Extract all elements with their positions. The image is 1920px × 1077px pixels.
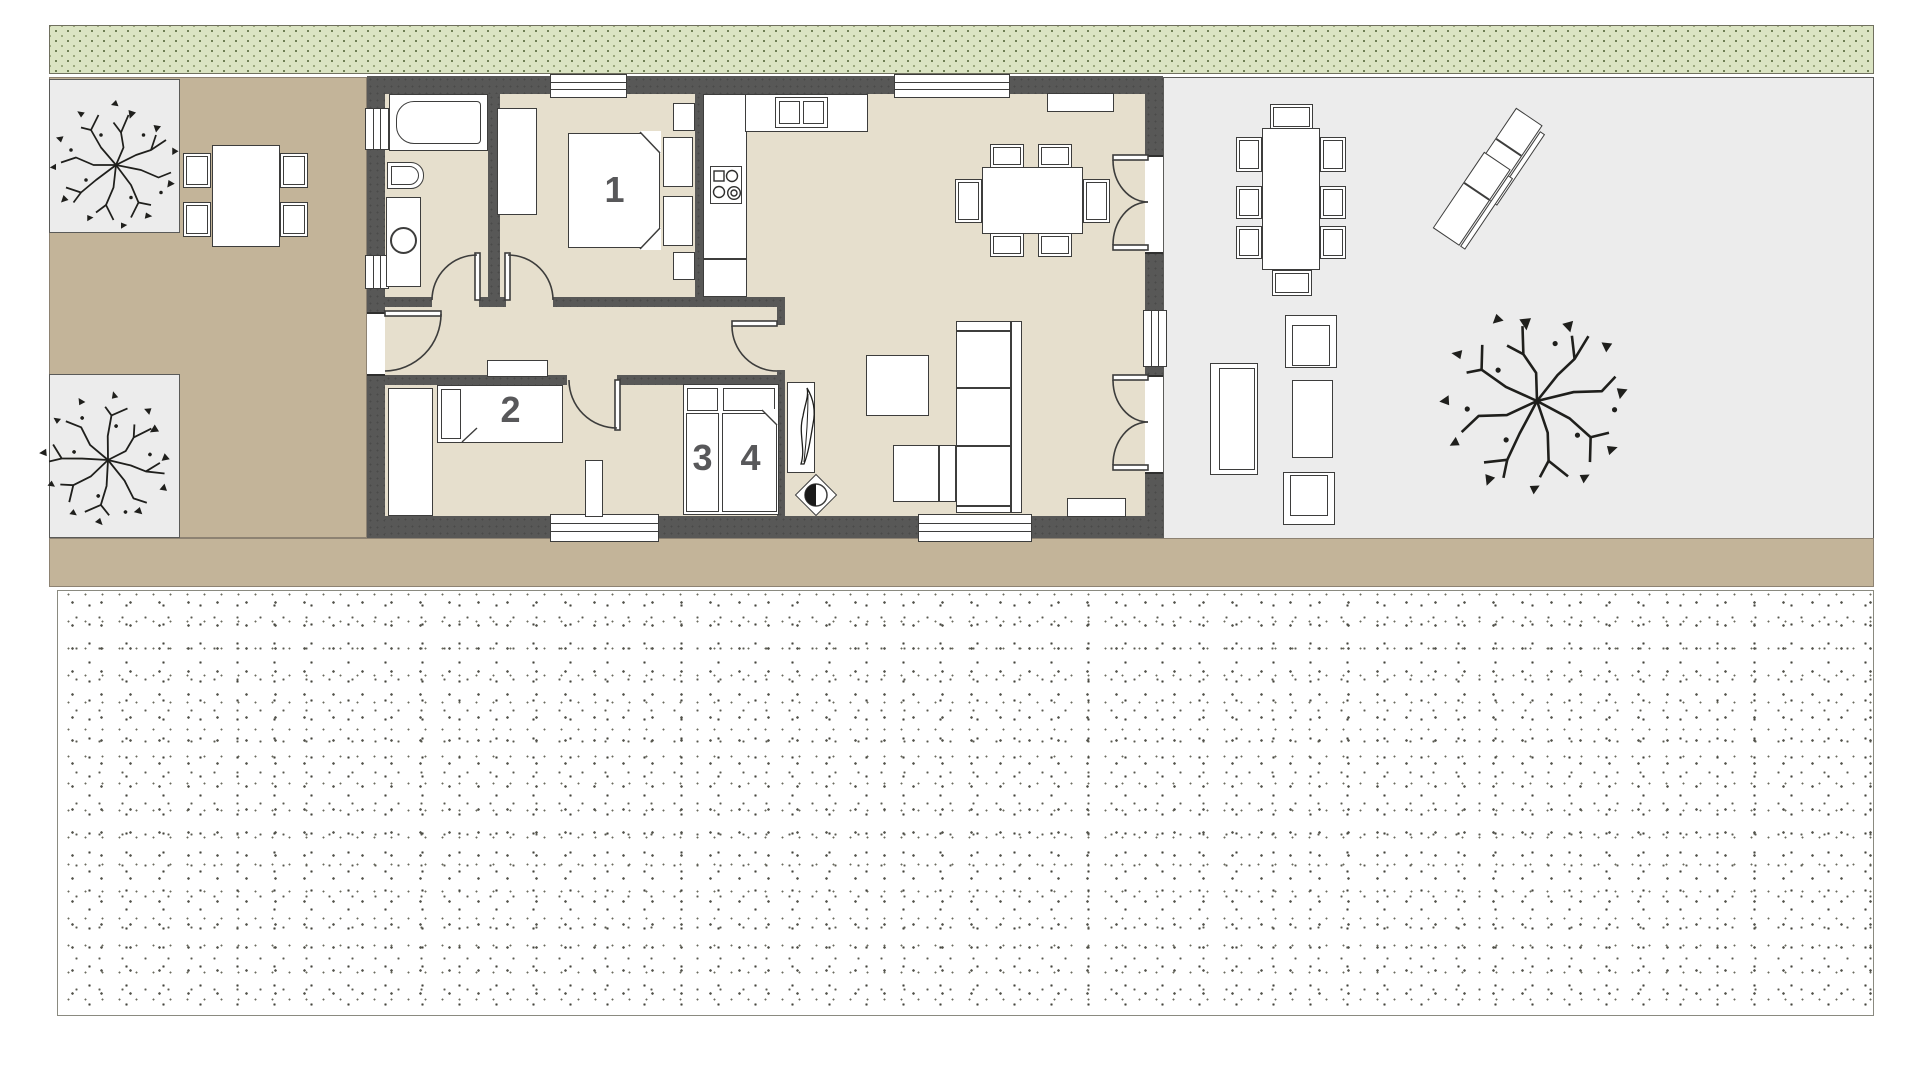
window-east-living	[1143, 310, 1167, 367]
window-south-kidsroom	[550, 514, 659, 542]
terrace-chair-right-2	[1320, 186, 1346, 219]
wall-hall-c	[553, 297, 785, 307]
bedroom1-door-opening	[506, 297, 553, 307]
kidsroom-shelf	[585, 460, 603, 517]
wall-hall-end-bottom	[777, 370, 785, 385]
bed-1-pillow-top	[663, 137, 693, 187]
wall-hall-end-top	[777, 307, 785, 325]
plant-stand	[787, 382, 815, 473]
terrace-chair-bottom	[1272, 270, 1312, 296]
kitchen-stove	[710, 166, 742, 204]
wall-hall-a	[385, 297, 432, 307]
window-south-living	[918, 514, 1032, 542]
sofa-chaise	[893, 445, 956, 502]
sofa-armrest-top-line	[957, 330, 1010, 332]
living-sideboard-top	[1047, 93, 1114, 112]
garden-chair-3	[280, 153, 308, 188]
garden-table	[212, 145, 280, 247]
bed-1-pillow-bottom	[663, 196, 693, 246]
bed-4-label: 4	[720, 440, 780, 476]
terrace-chair-left-3	[1236, 226, 1262, 259]
dining-chair-bottom-1	[990, 233, 1024, 257]
window-north-living	[894, 74, 1010, 98]
sofa-back-line	[1010, 322, 1012, 512]
french-door-lower-opening	[1145, 375, 1163, 474]
bathtub-inner	[396, 101, 481, 144]
gravel-area	[57, 590, 1874, 1016]
sofa	[956, 321, 1022, 513]
sofa-cushion-line-1	[957, 387, 1010, 389]
bath-sink-basin	[390, 227, 417, 254]
bed-1-label: 1	[568, 172, 660, 208]
bed-3-pillow	[687, 388, 718, 411]
bedroom1-wardrobe	[497, 108, 537, 215]
kidsroom-wardrobe	[388, 388, 433, 516]
kitchen-sink-basin-right	[803, 101, 824, 124]
bed-2-pillow	[441, 389, 461, 439]
floor-plan-canvas: 1 2 3 4	[0, 0, 1920, 1077]
garden-chair-1	[183, 153, 211, 188]
terrace-chair-left-2	[1236, 186, 1262, 219]
bedroom1-nightstand-top	[673, 103, 695, 131]
living-sideboard-bottom	[1067, 498, 1126, 517]
dining-chair-left	[955, 179, 982, 223]
bed-2-label: 2	[460, 392, 560, 428]
dining-table	[982, 167, 1083, 234]
window-west-bath	[365, 108, 389, 150]
kidsroom-door-opening	[567, 375, 617, 385]
entrance-door-opening	[367, 312, 385, 376]
terrace-dining-table	[1262, 128, 1320, 270]
dining-chair-bottom-2	[1038, 233, 1072, 257]
terrace-armchair-top-inner	[1292, 325, 1330, 366]
wall-north	[367, 76, 1163, 94]
hedge-strip	[49, 25, 1874, 74]
garden-chair-2	[183, 202, 211, 237]
terrace-lounge-table	[1292, 380, 1333, 458]
kitchen-fridge	[703, 259, 747, 297]
sofa-armrest-bottom-line	[957, 505, 1010, 507]
kitchen-sink-basin-left	[779, 101, 800, 124]
wall-south	[367, 516, 1163, 538]
sofa-chaise-line	[938, 446, 940, 501]
terrace-chair-right-1	[1320, 137, 1346, 172]
window-north-bedroom1	[550, 74, 627, 98]
toilet-inner	[391, 166, 419, 185]
terrace-sofa-inner	[1219, 368, 1255, 470]
terrace-armchair-bottom-inner	[1290, 475, 1328, 516]
left-tree-square-top	[49, 79, 180, 233]
terrace-chair-left-1	[1236, 137, 1262, 172]
french-door-upper-opening	[1145, 155, 1163, 254]
dining-chair-top-1	[990, 144, 1024, 168]
bedroom1-nightstand-bottom	[673, 252, 695, 280]
bed-4-pillow	[723, 388, 775, 411]
wall-hall-b	[479, 297, 506, 307]
bottom-path-strip	[49, 538, 1874, 587]
hall-living-door-opening	[777, 325, 785, 370]
terrace-chair-right-3	[1320, 226, 1346, 259]
left-tree-square-bottom	[49, 374, 180, 538]
dining-chair-top-2	[1038, 144, 1072, 168]
garden-chair-4	[280, 202, 308, 237]
dining-chair-right	[1083, 179, 1110, 223]
bath-door-opening	[432, 297, 479, 307]
sofa-cushion-line-2	[957, 445, 1010, 447]
wall-bedroom1-kitchen	[695, 94, 703, 297]
coffee-table	[866, 355, 929, 416]
terrace-chair-top	[1270, 104, 1313, 130]
hall-sideboard	[487, 360, 548, 377]
